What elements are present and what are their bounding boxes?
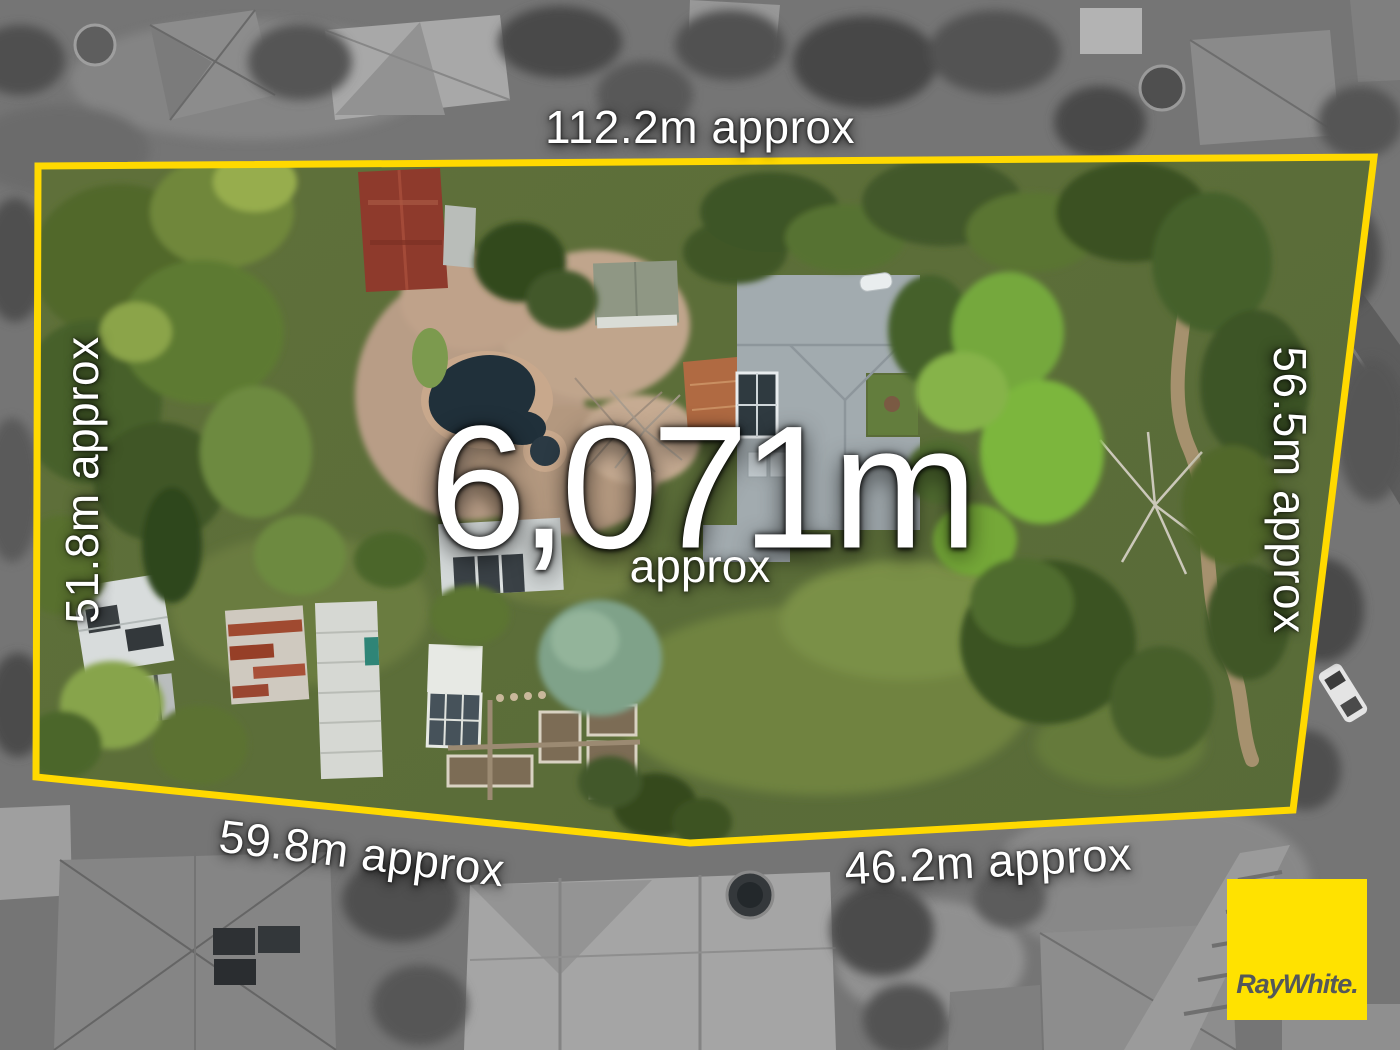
greenhouse <box>425 644 483 748</box>
land-area-qualifier: approx <box>630 539 771 593</box>
neighbor-house-bottom-center <box>464 872 836 1050</box>
raywhite-logo: RayWhite. <box>1227 879 1367 1020</box>
rusty-shed <box>225 605 309 704</box>
dimension-label-top: 112.2m approx <box>545 100 855 154</box>
blue-green-tree <box>538 600 662 716</box>
aerial-property-photo: 112.2m approx 51.8m approx 56.5m approx … <box>0 0 1400 1050</box>
long-white-shed <box>315 601 383 779</box>
mossy-shed <box>593 261 679 329</box>
dimension-label-right: 56.5m approx <box>1263 346 1317 633</box>
trampoline <box>1140 66 1184 110</box>
dimension-label-left: 51.8m approx <box>55 336 109 623</box>
raywhite-logo-text: RayWhite. <box>1236 971 1358 998</box>
